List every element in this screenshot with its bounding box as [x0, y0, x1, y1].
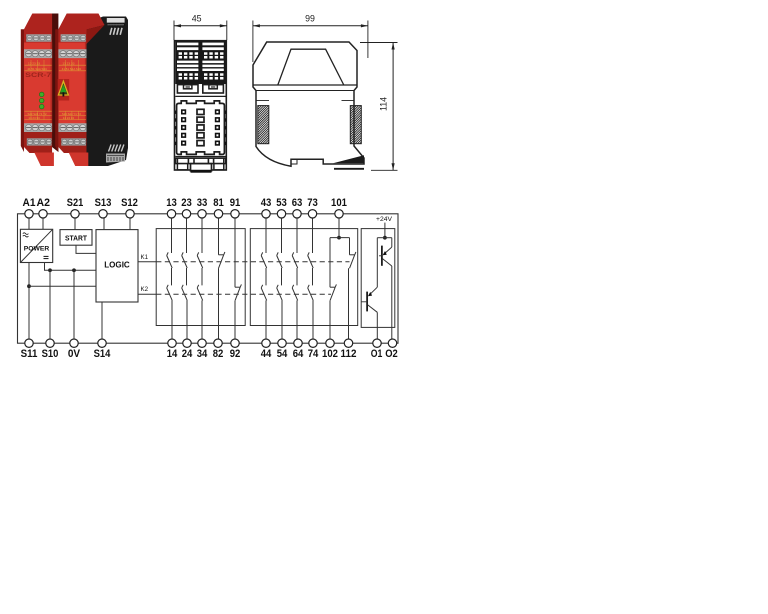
svg-text:24: 24 [182, 348, 193, 360]
svg-text:34: 34 [197, 348, 208, 360]
svg-text:102: 102 [322, 348, 338, 360]
svg-text:S12: S12 [121, 197, 138, 209]
svg-text:41 51 S1A S34: 41 51 S1A S34 [27, 67, 47, 71]
svg-text:13 23 33: 13 23 33 [62, 61, 74, 65]
svg-text:14 24 34: 14 24 34 [63, 116, 75, 120]
svg-text:13 23 33: 13 23 33 [28, 61, 40, 65]
svg-text:74: 74 [308, 348, 319, 360]
svg-text:LOGIC: LOGIC [104, 260, 130, 269]
svg-text:K2: K2 [141, 286, 149, 293]
svg-text:63: 63 [292, 197, 303, 209]
svg-text:54: 54 [277, 348, 288, 360]
svg-text:A2: A2 [37, 197, 51, 209]
svg-text:O2: O2 [385, 348, 398, 360]
svg-text:41 51 S1A S34: 41 51 S1A S34 [62, 67, 82, 71]
svg-text:0V: 0V [68, 348, 81, 360]
svg-text:O1: O1 [371, 348, 383, 360]
svg-text:33: 33 [197, 197, 208, 209]
svg-text:START: START [65, 235, 88, 242]
svg-text:53: 53 [276, 197, 287, 209]
svg-text:82: 82 [213, 348, 224, 360]
svg-text:64: 64 [293, 348, 304, 360]
svg-text:14 24 34: 14 24 34 [28, 116, 40, 120]
svg-text:45: 45 [192, 14, 202, 24]
svg-text:S13: S13 [95, 197, 112, 209]
svg-text:81: 81 [213, 197, 224, 209]
svg-text:44: 44 [261, 348, 272, 360]
svg-text:91: 91 [230, 197, 241, 209]
svg-text:S14: S14 [94, 348, 111, 360]
svg-text:114: 114 [379, 97, 389, 111]
svg-text:K1: K1 [141, 254, 149, 261]
svg-text:SCR-7: SCR-7 [25, 72, 51, 79]
svg-text:POWER: POWER [24, 246, 50, 253]
svg-text:99: 99 [305, 14, 315, 24]
svg-text:A1: A1 [23, 197, 36, 209]
svg-text:112: 112 [341, 348, 357, 360]
svg-text:92: 92 [230, 348, 241, 360]
svg-text:S21: S21 [67, 197, 83, 209]
svg-text:S10: S10 [42, 348, 59, 360]
svg-text:101: 101 [331, 197, 347, 209]
svg-text:14: 14 [167, 348, 178, 360]
svg-text:23: 23 [181, 197, 192, 209]
svg-text:+24V: +24V [376, 216, 392, 223]
svg-text:73: 73 [307, 197, 318, 209]
svg-text:13: 13 [166, 197, 177, 209]
svg-text:S11: S11 [21, 348, 38, 360]
svg-text:43: 43 [261, 197, 272, 209]
